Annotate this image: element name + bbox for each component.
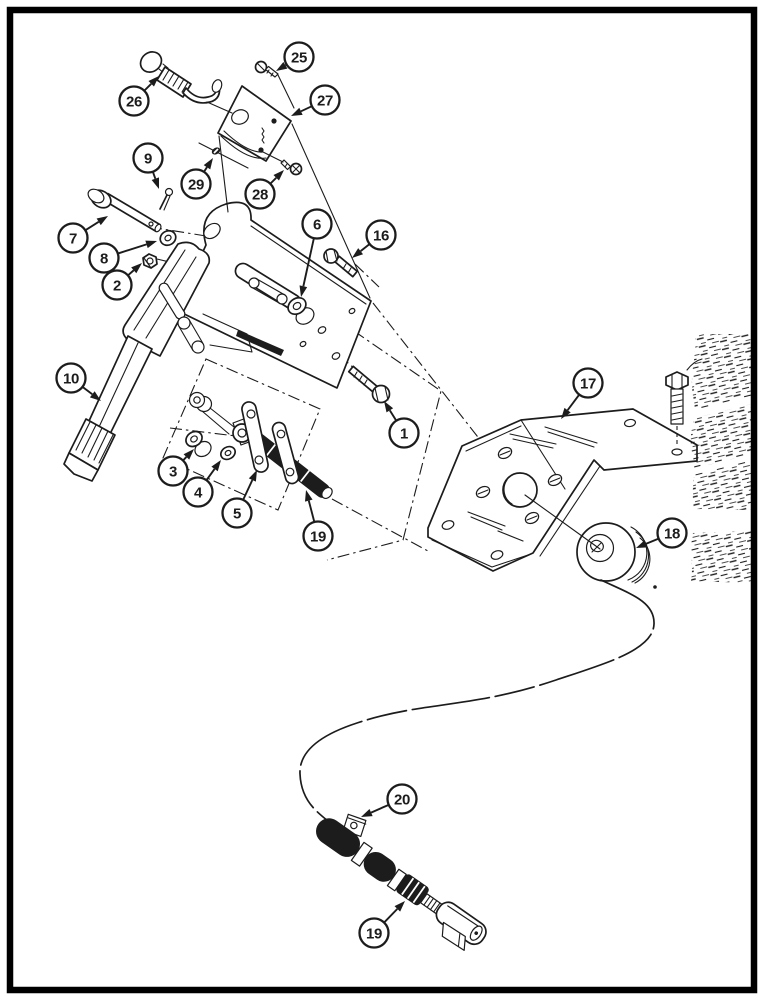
callout-number: 29 [188,177,204,194]
handle-shaft [89,336,152,434]
callout-number: 8 [100,251,108,268]
callout-arrow-line [85,222,98,230]
callout-number: 19 [310,529,326,546]
callout-arrow-head [361,809,373,817]
callout-5: 5 [223,470,258,528]
part-2-nut [143,254,157,268]
callout-number: 19 [366,926,382,943]
callout-arrow-line [144,84,151,91]
callout-27: 27 [291,86,340,117]
part-27-cover-plate [218,86,291,161]
callout-number: 28 [252,187,268,204]
callout-arrow-head [152,177,159,189]
callout-arrow-head [204,158,213,169]
callout-number: 4 [194,485,203,502]
centerline-bolt-16 [355,264,379,287]
callout-18: 18 [636,519,687,549]
manual-page: 252627292897826161013451917182019 [0,0,764,1000]
part-1-bolt [349,366,390,402]
callout-25: 25 [276,43,314,72]
exploded-diagram-canvas: 252627292897826161013451917182019 [0,0,764,1000]
centerline-rod-extension [332,499,428,551]
callout-number: 9 [144,151,152,168]
callout-number: 5 [233,506,241,523]
callout-26: 26 [120,76,160,116]
callout-arrow-head [384,401,393,412]
callout-number: 16 [373,228,389,245]
callout-number: 25 [291,50,307,67]
callout-arrow-head [305,490,313,502]
callout-arrow-head [211,460,221,471]
callout-number: 1 [400,426,408,443]
callout-arrow-line [390,410,396,420]
link-arm [190,393,235,435]
callout-number: 2 [113,278,121,295]
callout-arrow-head [249,470,257,482]
callout-number: 20 [394,792,410,809]
callout-19: 19 [304,490,333,551]
callout-19: 19 [360,901,406,948]
part-17-mounting-bracket [428,409,697,571]
callout-number: 27 [317,93,333,110]
callout-arrow-line [128,270,134,275]
callout-9: 9 [134,144,163,190]
callout-20: 20 [361,785,417,818]
cable-routing-curve [300,580,654,821]
part-26-knob [136,48,223,103]
callout-arrow-line [301,106,312,111]
part-19-cable-assembly [306,799,500,956]
callout-arrow-line [384,909,397,923]
callout-arrow-line [361,244,370,251]
callout-4: 4 [184,460,222,507]
callout-arrow-head [145,241,157,248]
callout-layer: 252627292897826161013451917182019 [57,43,687,948]
part-28-screw [281,160,302,175]
callout-17: 17 [561,369,603,420]
callout-28: 28 [246,170,285,209]
callout-arrow-head [636,540,648,548]
callout-number: 7 [69,231,77,248]
speck [653,585,657,589]
callout-arrow-line [83,387,93,394]
part-25-screw [256,62,279,78]
callout-number: 17 [580,376,596,393]
callout-arrow-line [568,395,580,411]
callout-arrow-head [291,108,303,116]
callout-arrow-line [118,244,147,253]
callout-number: 6 [313,217,321,234]
callout-29: 29 [182,158,214,199]
frame-hatch-texture [686,334,756,583]
callout-arrow-line [206,469,214,480]
callout-arrow-line [309,501,315,522]
callout-number: 18 [664,526,680,543]
callout-arrow-line [371,805,389,813]
callout-arrow-line [270,178,276,184]
part-18-grommet [525,495,650,583]
page-border [10,10,754,990]
callout-number: 3 [169,464,177,481]
bracket-bolt-hole [672,449,682,455]
callout-arrow-line [646,539,658,544]
callout-16: 16 [352,221,396,259]
callout-number: 10 [63,371,79,388]
callout-number: 26 [126,94,142,111]
callout-arrow-line [243,480,252,500]
part-4-washer [219,444,238,462]
callout-arrow-head [97,216,108,225]
part-7-clevis-pin [86,186,163,232]
part-9-cotter-pin [160,189,173,211]
callout-10: 10 [57,364,102,402]
callout-1: 1 [384,401,419,448]
